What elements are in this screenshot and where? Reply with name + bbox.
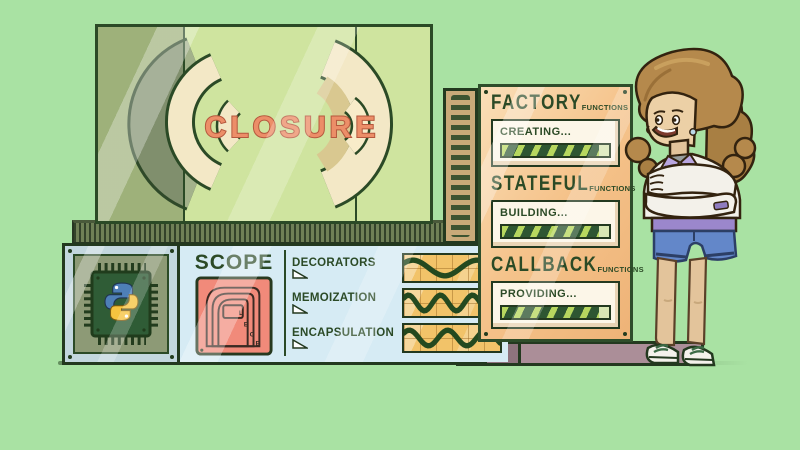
- hem-band: [652, 218, 736, 231]
- earring: [690, 129, 696, 135]
- scope-title: SCOPE: [195, 250, 274, 276]
- section-callback: CALLBACK FUNCTIONS PROVIDING...: [491, 257, 620, 329]
- feature-row-memoization: MEMOIZATION: [292, 286, 502, 320]
- progress-bar: [500, 224, 611, 239]
- row-label: MEMOIZATION: [292, 292, 376, 304]
- flag-triangle-icon: [292, 304, 308, 314]
- closure-screen: CLOSURE: [95, 24, 433, 224]
- bracelet: [714, 201, 729, 210]
- chip-module: [65, 246, 177, 362]
- progress-bar: [500, 143, 611, 158]
- vent-slats: [451, 95, 470, 237]
- panel-divider: [284, 250, 286, 356]
- row-label: ENCAPSULATION: [292, 327, 394, 339]
- feature-rows: DECORATORS MEMOIZATION: [292, 250, 502, 356]
- legb-letter-b: B: [255, 340, 260, 347]
- status-text: BUILDING...: [500, 207, 611, 219]
- face: [647, 92, 696, 146]
- feature-row-encapsulation: ENCAPSULATION: [292, 321, 502, 355]
- flag-triangle-icon: [292, 269, 308, 279]
- status-text: CREATING...: [500, 126, 611, 138]
- closure-screen-art: CLOSURE: [98, 27, 430, 221]
- vent-column: [443, 88, 478, 244]
- status-text: PROVIDING...: [500, 288, 611, 300]
- status-box: BUILDING...: [491, 200, 620, 248]
- legb-letter-e: E: [244, 322, 249, 329]
- section-stateful: STATEFUL FUNCTIONS BUILDING...: [491, 176, 620, 248]
- legb-diagram: L E G B: [194, 276, 274, 356]
- status-box: CREATING...: [491, 119, 620, 167]
- woman-character: [612, 42, 764, 368]
- illustration-scene: CLOSURE: [0, 0, 800, 450]
- section-title: CALLBACK: [491, 252, 597, 277]
- flag-triangle-icon: [292, 339, 308, 349]
- scope-column: SCOPE L E G B: [188, 250, 280, 356]
- legb-letter-g: G: [250, 331, 255, 338]
- legb-letter-l: L: [239, 310, 243, 317]
- scope-console: SCOPE L E G B DECORATO: [62, 243, 487, 365]
- row-label: DECORATORS: [292, 257, 376, 269]
- leg-right: [688, 258, 706, 344]
- functions-panel: FACTORY FUNCTIONS CREATING... STATEFUL F…: [478, 84, 633, 342]
- closure-title: CLOSURE: [205, 111, 380, 144]
- shoe-left: [647, 345, 678, 363]
- python-chip: [78, 258, 164, 350]
- section-title: FACTORY: [491, 90, 582, 115]
- section-title: STATEFUL: [491, 171, 589, 196]
- section-factory: FACTORY FUNCTIONS CREATING...: [491, 95, 620, 167]
- shoe-right: [683, 347, 714, 365]
- status-box: PROVIDING...: [491, 281, 620, 329]
- scope-panel: SCOPE L E G B DECORATO: [177, 246, 508, 362]
- feature-row-decorators: DECORATORS: [292, 251, 502, 285]
- chip-socket: [73, 254, 169, 354]
- progress-bar: [500, 305, 611, 320]
